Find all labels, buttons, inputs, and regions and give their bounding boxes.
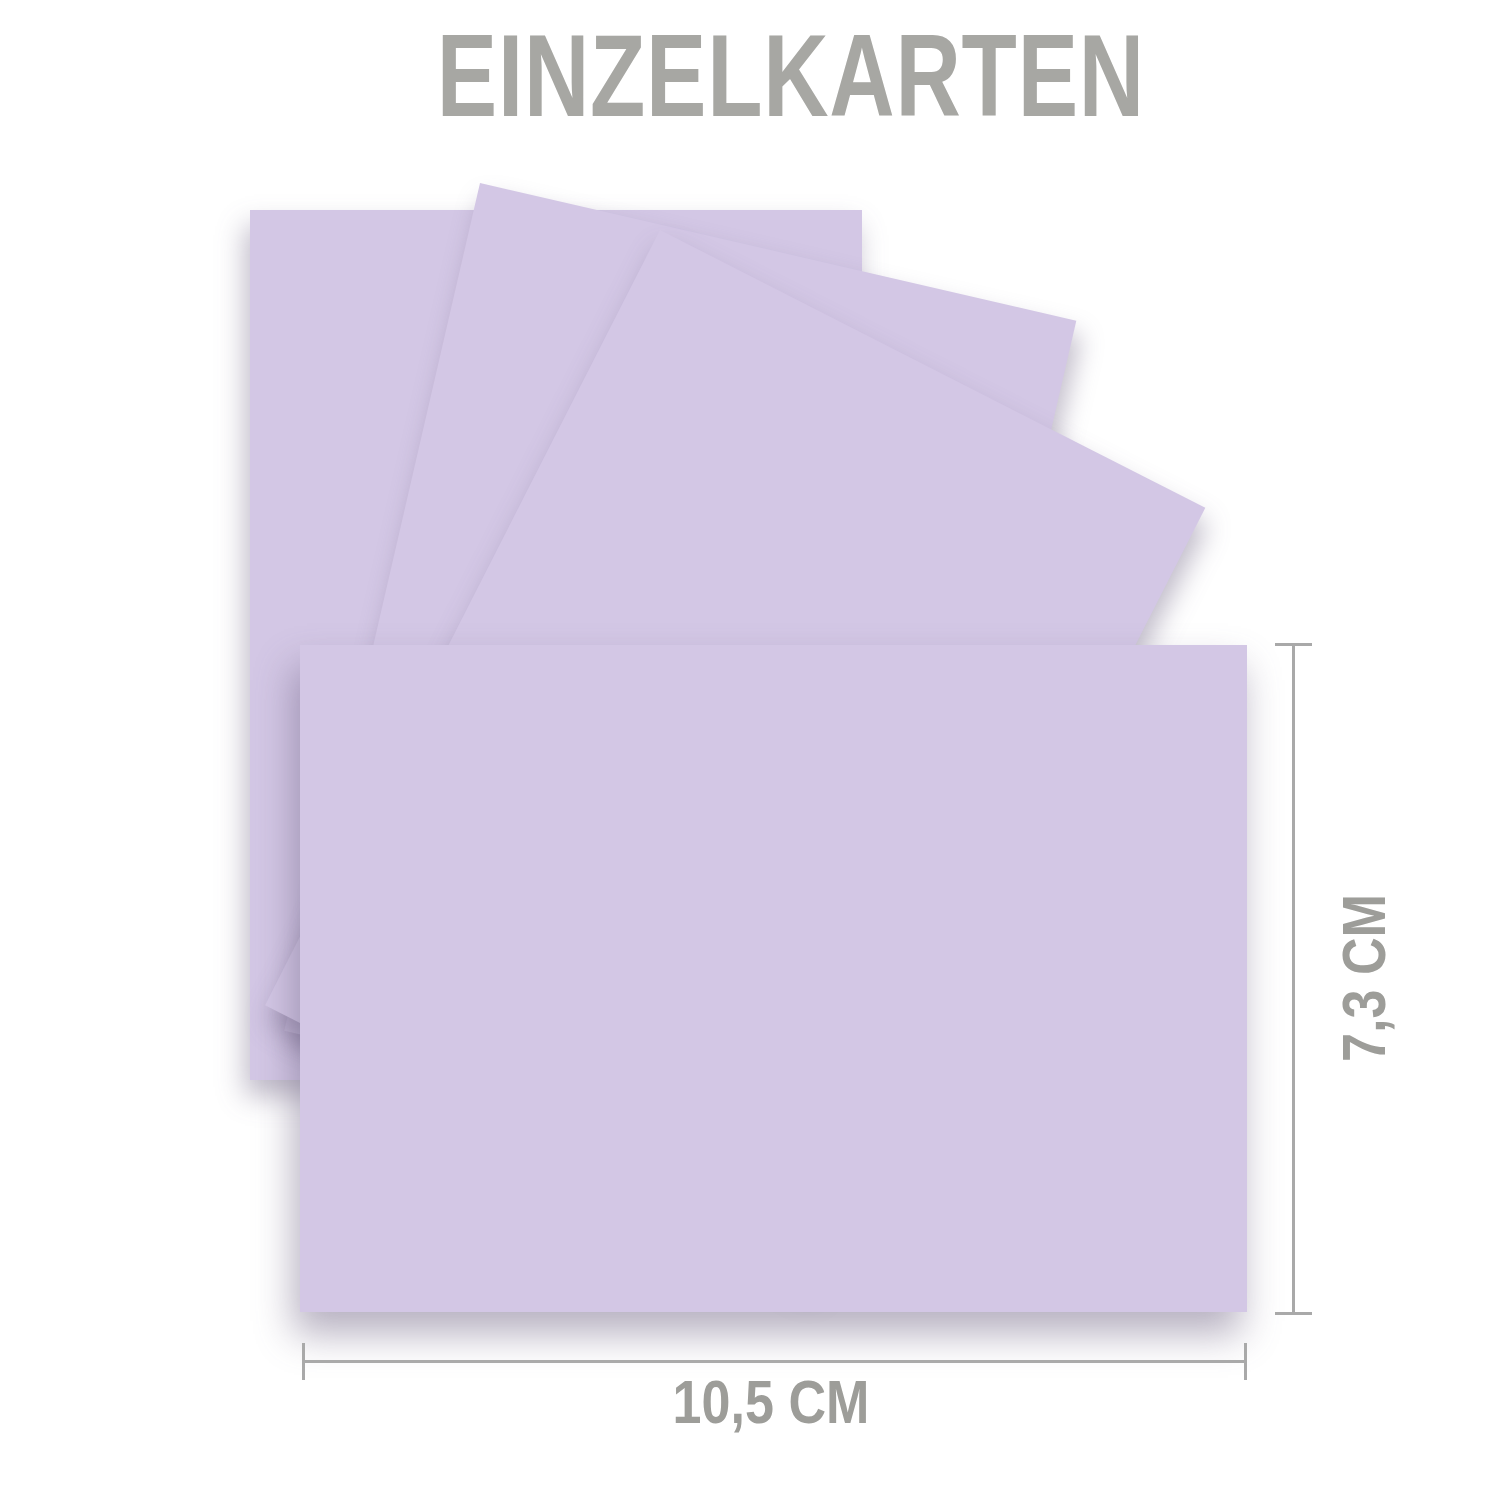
width-dimension-line: [302, 1360, 1247, 1363]
width-dimension-cap-right: [1244, 1343, 1247, 1380]
height-dimension-label-text: 7,3 CM: [1333, 894, 1395, 1062]
product-image: EINZELKARTEN 7,3 CM 10,5 CM: [0, 0, 1500, 1500]
page-title: EINZELKARTEN: [0, 18, 1500, 134]
height-dimension-cap-bottom: [1275, 1312, 1312, 1315]
page-title-text: EINZELKARTEN: [437, 18, 1145, 134]
width-dimension-label-text: 10,5 CM: [673, 1371, 870, 1433]
width-dimension-label: 10,5 CM: [654, 1371, 888, 1433]
height-dimension-line: [1292, 643, 1295, 1315]
height-dimension-cap-top: [1275, 643, 1312, 646]
width-dimension-cap-left: [302, 1343, 305, 1380]
front-card: [300, 645, 1247, 1312]
height-dimension-label: 7,3 CM: [1333, 878, 1395, 1078]
